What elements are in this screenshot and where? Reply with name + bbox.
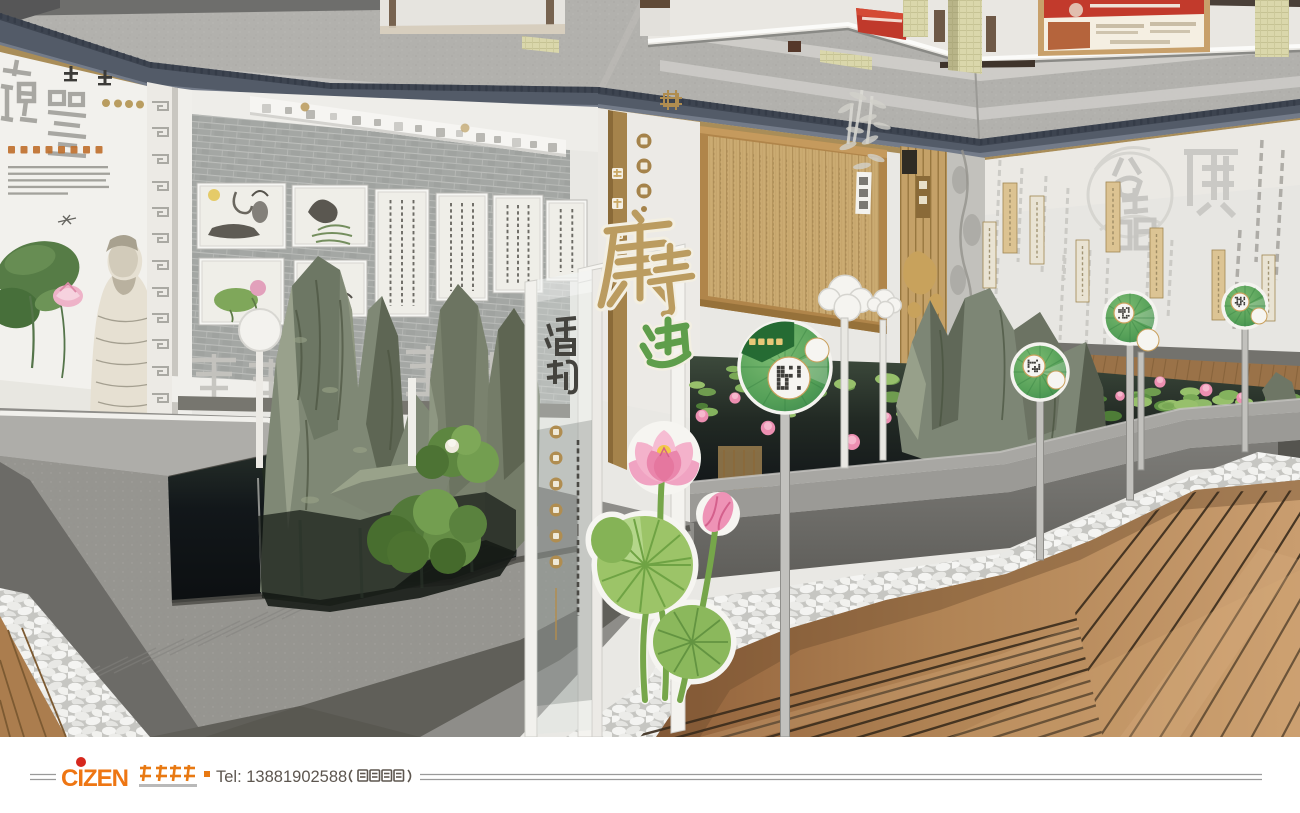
- svg-text:Tel: 13881902588: Tel: 13881902588: [216, 768, 347, 786]
- svg-text:CIZEN: CIZEN: [61, 765, 128, 792]
